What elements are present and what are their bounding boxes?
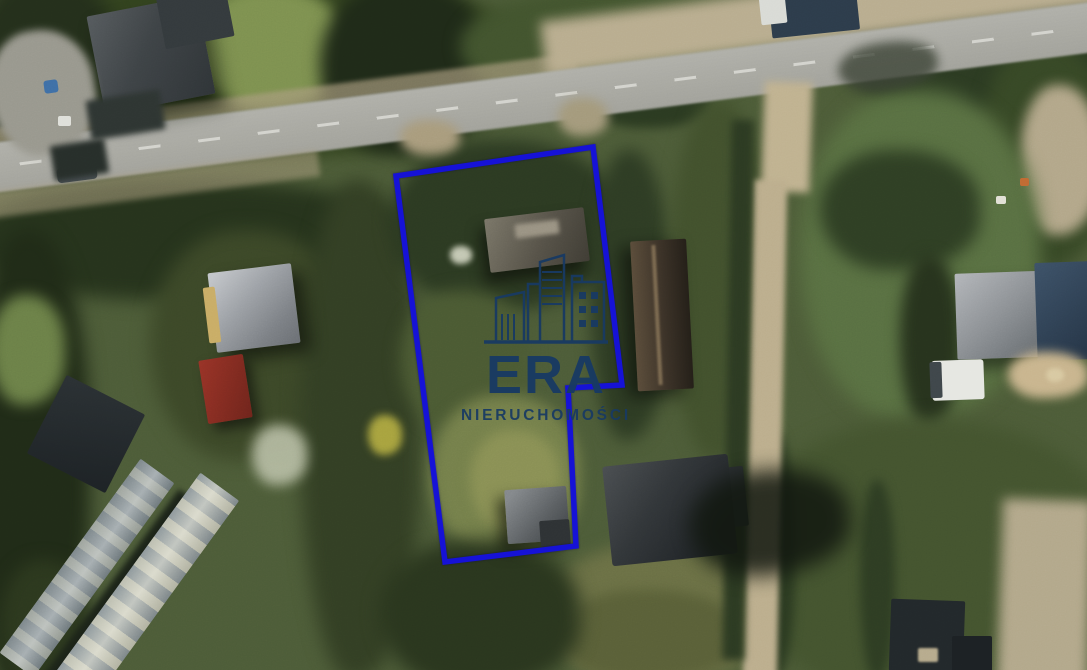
driveway-entrance-2 <box>558 98 608 136</box>
yellow-bush <box>368 415 402 455</box>
junk-white-dot <box>996 196 1006 204</box>
house-midleft-hip-roof <box>207 263 300 353</box>
structure-bottom-right-2 <box>952 636 992 670</box>
white-car-driveway <box>58 116 71 126</box>
driveway-entrance-1 <box>400 120 460 155</box>
long-building-right-of-plot <box>630 239 694 392</box>
blossom-tree <box>252 425 307 485</box>
building-topright-white-wall <box>759 0 788 25</box>
gravel-path-bottom-right <box>997 498 1087 670</box>
light-bit-bottom-right <box>918 648 938 662</box>
lawn-left-edge <box>0 295 65 405</box>
field-rows-bottom <box>560 590 740 670</box>
trailer-dark-side <box>929 362 942 398</box>
sand-pile-light <box>1046 368 1064 382</box>
junk-orange-dot <box>1020 178 1029 186</box>
satellite-photo: ERA NIERUCHOMOŚCI <box>0 0 1087 670</box>
small-blossom-in-plot <box>450 246 472 264</box>
dirt-path-top <box>761 81 813 193</box>
tree-cluster-right <box>820 150 980 270</box>
trees-below-plot <box>380 540 580 670</box>
shed-in-plot-dark-part <box>539 519 571 547</box>
blue-bin <box>43 79 59 94</box>
house-right-navy-roof <box>1034 261 1087 361</box>
